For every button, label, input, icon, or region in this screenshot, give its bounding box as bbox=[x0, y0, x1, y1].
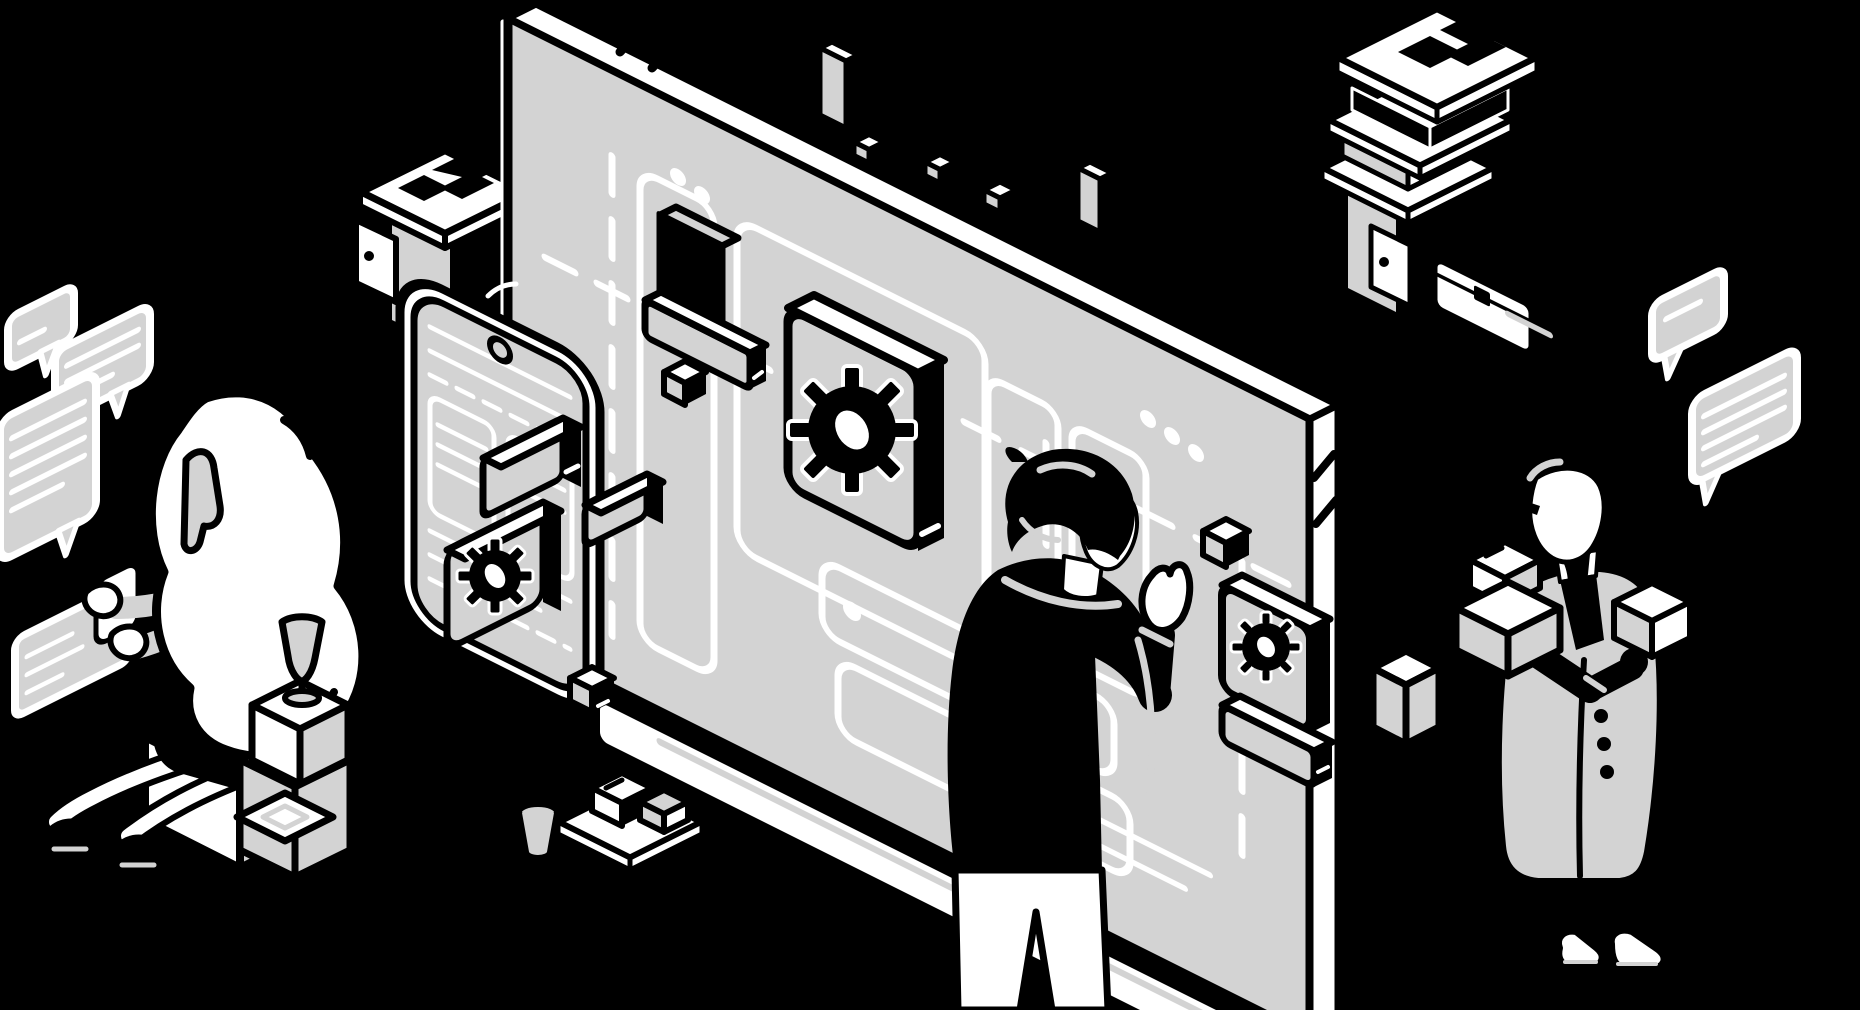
slab-side bbox=[846, 55, 858, 128]
raised-hand bbox=[1142, 565, 1190, 631]
slab-side bbox=[647, 474, 663, 524]
slab-side bbox=[1100, 173, 1112, 232]
illustration-canvas bbox=[0, 0, 1860, 1010]
forearm bbox=[1155, 635, 1160, 695]
gear-box-side bbox=[543, 502, 561, 611]
tag-card-dot bbox=[364, 251, 374, 261]
face bbox=[1530, 468, 1604, 562]
slab-front bbox=[820, 48, 846, 128]
coat-button bbox=[1594, 709, 1608, 723]
coat-button bbox=[1600, 765, 1614, 779]
hand bbox=[110, 627, 146, 659]
coat-button bbox=[1597, 737, 1611, 751]
cube-right bbox=[1406, 668, 1439, 744]
slab-front bbox=[1078, 168, 1100, 232]
cube-right bbox=[1373, 651, 1439, 744]
device-box bbox=[1614, 583, 1690, 657]
gear-icon bbox=[788, 366, 916, 494]
cube-left bbox=[1373, 668, 1406, 744]
edge-card-side bbox=[1310, 619, 1330, 733]
gear-icon bbox=[457, 538, 533, 614]
tag-card-dot bbox=[1379, 257, 1389, 267]
trophy-base bbox=[285, 691, 319, 705]
gear-card-side bbox=[918, 360, 944, 551]
bucket-body bbox=[519, 813, 557, 858]
isometric-illustration bbox=[0, 0, 1860, 1010]
hand bbox=[84, 585, 120, 617]
gear-icon bbox=[1231, 612, 1301, 682]
slab-side bbox=[563, 418, 581, 487]
